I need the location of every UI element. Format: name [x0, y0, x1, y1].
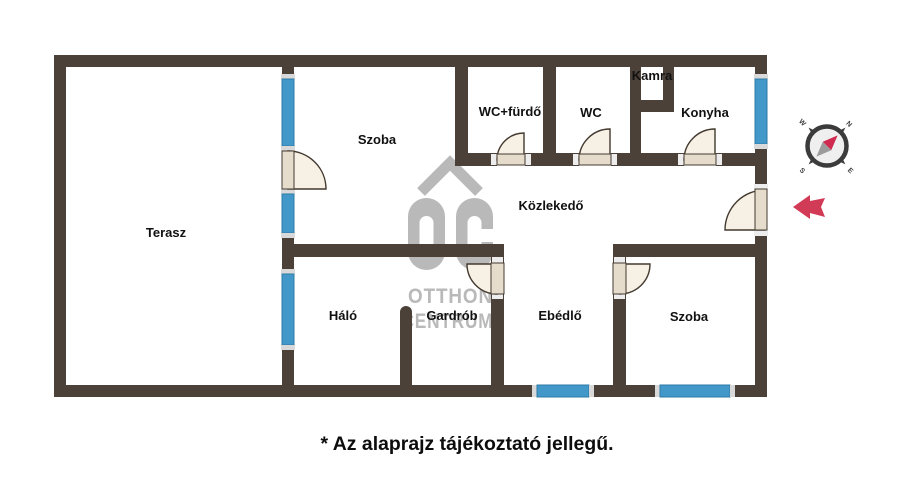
window-cap	[532, 385, 537, 397]
wall-corridor-bottom-left	[282, 244, 503, 257]
window-cap	[589, 385, 594, 397]
label-kozlekedo: Közlekedő	[518, 198, 583, 213]
compass-e: E	[846, 167, 854, 175]
window-cap	[281, 345, 295, 350]
door-jamb	[611, 154, 617, 165]
doors	[282, 129, 768, 299]
door-jamb	[491, 154, 497, 165]
window-cap	[655, 385, 660, 397]
label-szoba-felso: Szoba	[358, 132, 397, 147]
compass-s: S	[798, 167, 806, 175]
label-konyha: Konyha	[681, 105, 729, 120]
entry-arrow-icon	[793, 195, 825, 219]
wall-gardrob-lower	[491, 294, 504, 385]
door-leaf-wc	[579, 154, 611, 165]
compass: N E S W	[773, 96, 877, 200]
label-halo: Háló	[329, 308, 357, 323]
window-terasz-halo	[282, 274, 294, 345]
door-jamb	[678, 154, 684, 165]
door-leaf-konyha	[684, 154, 716, 165]
window-cap	[281, 269, 295, 274]
wall-corridor-top-3	[611, 153, 684, 166]
caption: * Az alaprajz tájékoztató jellegű.	[321, 433, 614, 455]
door-jamb	[573, 154, 579, 165]
label-terasz: Terasz	[146, 225, 187, 240]
label-kamra: Kamra	[632, 68, 673, 83]
window-terasz-szoba-2	[282, 194, 294, 233]
window-cap	[754, 74, 768, 79]
window-cap	[281, 74, 295, 79]
label-wc: WC	[580, 105, 602, 120]
wall-terasz-1	[282, 67, 294, 74]
door-jamb	[492, 257, 503, 263]
wall-halo-gardrob-partial-base	[400, 342, 412, 385]
door-leaf-entry	[755, 189, 767, 230]
window-cap	[281, 189, 295, 194]
floorplan-canvas: OTTHON CENTRUM	[0, 0, 904, 500]
windows	[281, 74, 768, 397]
door-leaf-gardrob	[491, 263, 504, 294]
door-leaf-wcfurdo	[497, 154, 525, 165]
label-szoba-also: Szoba	[670, 309, 709, 324]
door-jamb	[525, 154, 531, 165]
wall-outer-left	[54, 55, 66, 397]
label-ebedlo: Ebédlő	[538, 308, 581, 323]
wall-corridor-bottom-right	[613, 244, 767, 257]
wall-szoba-wcfurdo	[455, 67, 468, 153]
window-terasz-szoba	[282, 79, 294, 146]
wall-outer-top	[54, 55, 767, 67]
window-cap	[281, 233, 295, 238]
door-jamb	[614, 257, 625, 263]
label-gardrob: Gardrób	[426, 308, 477, 323]
label-wc-furdo: WC+fürdő	[479, 104, 542, 119]
wall-corridor-top-2	[525, 153, 579, 166]
wall-terasz-3	[282, 350, 294, 385]
door-jamb	[716, 154, 722, 165]
window-konyha	[755, 79, 767, 144]
watermark-roof-icon	[421, 163, 479, 192]
door-jamb	[754, 230, 768, 236]
door-leaf-terasz	[282, 151, 294, 189]
wall-wcfurdo-wc	[543, 67, 556, 153]
compass-n: N	[844, 120, 853, 129]
wall-corridor-top-1	[455, 153, 497, 166]
watermark-letter-c-gap	[475, 229, 494, 242]
window-ebedlo	[537, 385, 589, 397]
compass-w: W	[797, 118, 807, 128]
floorplan-svg: OTTHON CENTRUM	[0, 0, 904, 500]
wall-kamra-bottom	[630, 100, 674, 112]
door-leaf-szoba-also	[613, 263, 626, 294]
window-cap	[730, 385, 735, 397]
window-cap	[754, 144, 768, 149]
wall-corridor-top-4	[716, 153, 767, 166]
window-cap	[281, 146, 295, 151]
wall-ebedlo-szoba-lower	[613, 294, 626, 385]
window-szoba-also	[660, 385, 730, 397]
